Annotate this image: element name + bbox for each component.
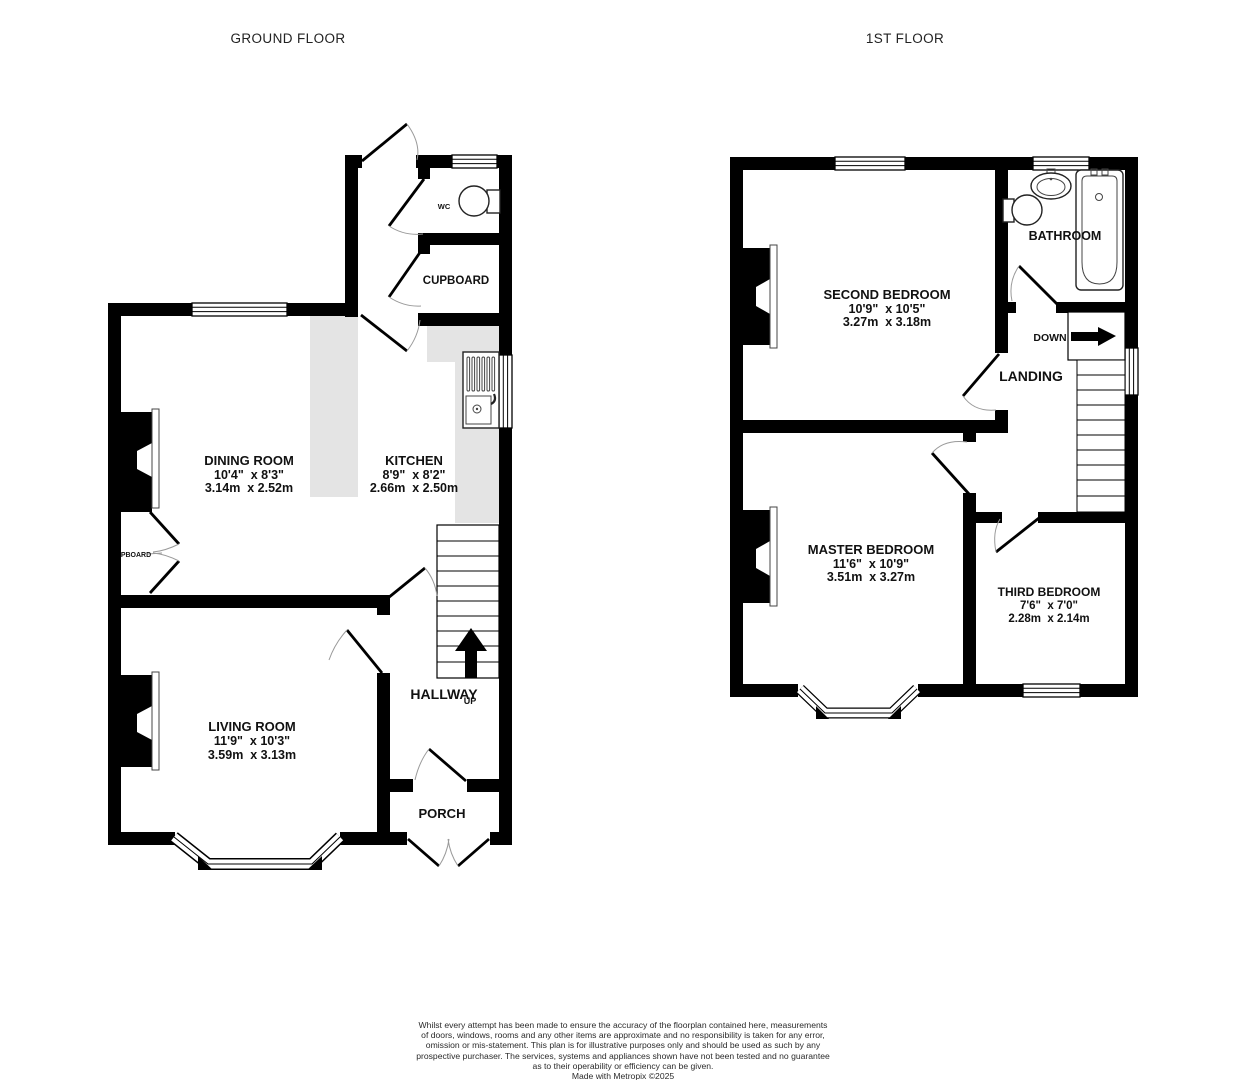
living-room-dims-metric: 3.59m x 3.13m [208, 748, 296, 762]
dining-fireplace-surround [152, 409, 159, 508]
pboard-label: PBOARD [121, 552, 151, 559]
dining-chimney-breast [121, 412, 152, 508]
master-bedroom-label: MASTER BEDROOM [808, 542, 934, 557]
master-bedroom-door [932, 441, 969, 494]
wc-toilet-icon [459, 186, 500, 216]
disclaimer-line: of doors, windows, rooms and any other i… [0, 1030, 1246, 1040]
disclaimer-block: Whilst every attempt has been made to en… [0, 1020, 1246, 1080]
master-bedroom-fireplace-surround [770, 507, 777, 606]
second-bedroom-dims-metric: 3.27m x 3.18m [843, 315, 931, 329]
third-bedroom-dims-metric: 2.28m x 2.14m [1008, 613, 1089, 625]
first-staircase [1068, 312, 1125, 512]
kitchen-window [499, 355, 512, 428]
wc-label: WC [438, 202, 451, 211]
floorplan-page: GROUND FLOOR 1ST FLOOR [0, 0, 1246, 1080]
kitchen-hallway-door [388, 568, 437, 598]
floorplan-canvas: GROUND FLOOR 1ST FLOOR [0, 0, 1246, 1080]
ground-walls [108, 155, 512, 845]
porch-door [415, 749, 466, 781]
back-door [362, 124, 418, 161]
wc-window [452, 155, 497, 168]
kitchen-label: KITCHEN [385, 453, 443, 468]
ground-fixtures [459, 186, 500, 428]
bathroom-door [1011, 266, 1058, 305]
master-bedroom-bay-window [800, 689, 917, 719]
dining-room-window [192, 303, 287, 316]
third-bedroom-label: THIRD BEDROOM [998, 585, 1101, 599]
first-floor-title: 1ST FLOOR [866, 31, 944, 46]
kitchen-sink-icon [463, 352, 499, 428]
second-bedroom-window [835, 157, 905, 170]
pboard-doors [148, 512, 179, 593]
ground-floor-title: GROUND FLOOR [230, 31, 345, 46]
second-bedroom-label: SECOND BEDROOM [823, 287, 950, 302]
living-chimney-breast [121, 675, 152, 767]
living-fireplace-surround [152, 672, 159, 770]
living-room-label: LIVING ROOM [208, 719, 295, 734]
dining-kitchen-divider-shading [310, 316, 358, 497]
disclaimer-line: omission or mis-statement. This plan is … [0, 1040, 1246, 1050]
disclaimer-credit: Made with Metropix ©2025 [0, 1071, 1246, 1080]
ground-staircase [437, 525, 499, 678]
kitchen-dims-metric: 2.66m x 2.50m [370, 481, 458, 495]
cupboard-label: CUPBOARD [423, 275, 489, 287]
disclaimer-line: Whilst every attempt has been made to en… [0, 1020, 1246, 1030]
dining-room-dims-metric: 3.14m x 2.52m [205, 481, 293, 495]
second-bedroom-chimney-breast [743, 248, 770, 345]
living-room-dims-imperial: 11'9" x 10'3" [214, 734, 290, 748]
second-bedroom-dims-imperial: 10'9" x 10'5" [849, 302, 926, 316]
first-floor-plan: SECOND BEDROOM 10'9" x 10'5" 3.27m x 3.1… [730, 157, 1138, 719]
disclaimer-line: as to their operability or efficiency ca… [0, 1061, 1246, 1071]
third-bedroom-dims-imperial: 7'6" x 7'0" [1020, 600, 1078, 612]
landing-label: LANDING [999, 368, 1063, 384]
landing-window [1125, 348, 1138, 395]
kitchen-lobby-door [361, 315, 420, 351]
second-bedroom-fireplace-surround [770, 245, 777, 348]
master-bedroom-dims-imperial: 11'6" x 10'9" [833, 557, 909, 571]
kitchen-dims-imperial: 8'9" x 8'2" [383, 468, 446, 482]
second-bedroom-door [963, 354, 999, 410]
living-room-door [329, 630, 382, 673]
living-room-bay-window [174, 837, 340, 870]
stairs-down-label: DOWN [1033, 332, 1066, 344]
master-bedroom-dims-metric: 3.51m x 3.27m [827, 570, 915, 584]
stairs-up-label: UP [464, 696, 477, 706]
ground-floor-plan: DINING ROOM 10'4" x 8'3" 3.14m x 2.52m K… [108, 124, 512, 870]
bathroom-toilet-icon [1003, 195, 1042, 225]
dining-room-dims-imperial: 10'4" x 8'3" [214, 468, 284, 482]
ground-labels: DINING ROOM 10'4" x 8'3" 3.14m x 2.52m K… [121, 202, 489, 821]
front-door [408, 839, 489, 866]
master-bedroom-chimney-breast [743, 510, 770, 603]
dining-room-label: DINING ROOM [204, 453, 294, 468]
bathroom-label: BATHROOM [1029, 229, 1102, 243]
cupboard-door [389, 251, 421, 306]
third-bedroom-window [1023, 684, 1080, 697]
bathroom-window [1033, 157, 1089, 170]
wc-door [389, 179, 424, 234]
third-bedroom-door [995, 518, 1039, 552]
bathroom-sink-icon [1031, 169, 1071, 199]
porch-label: PORCH [419, 806, 466, 821]
disclaimer-line: prospective purchaser. The services, sys… [0, 1051, 1246, 1061]
